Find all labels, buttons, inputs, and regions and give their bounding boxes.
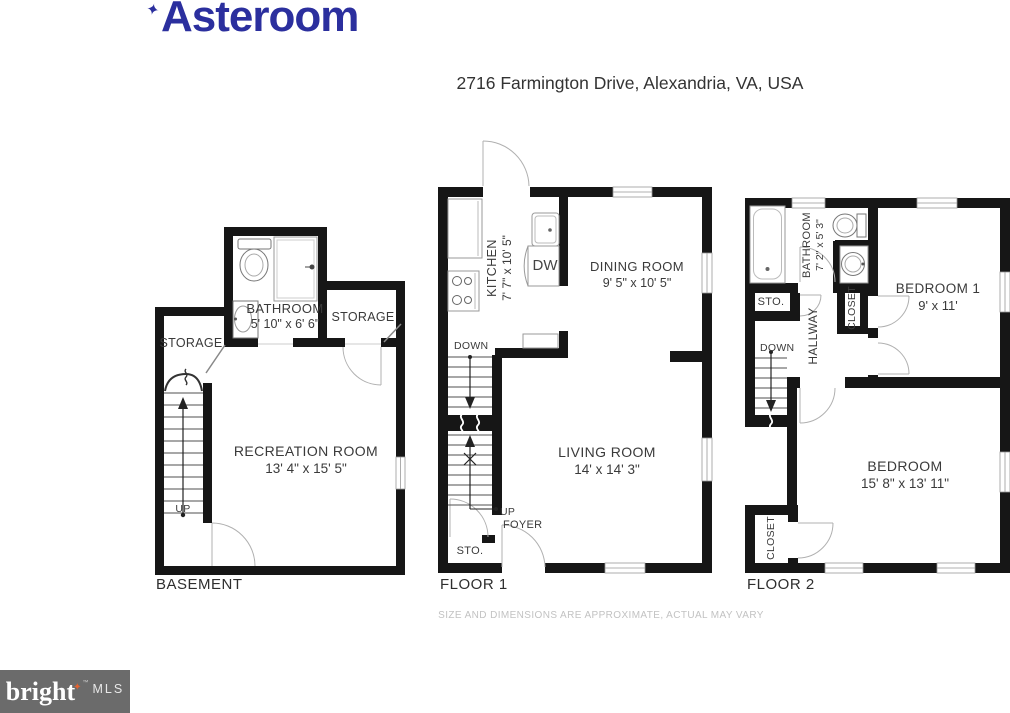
basement-storage-right-label: STORAGE [325, 310, 401, 324]
floor1-storage-label: STO. [452, 545, 488, 558]
floor1-down-label: DOWN [454, 340, 484, 352]
basement-floor-label: BASEMENT [156, 576, 243, 593]
brightmls-suffix: MLS [93, 682, 125, 696]
floor1-kitchen-label: KITCHEN 7' 7" x 10' 5" [485, 235, 515, 301]
basement-stairs-arrow [178, 397, 188, 517]
brightmls-watermark: bright✦™MLS [0, 670, 130, 713]
stove [448, 271, 479, 311]
shower [274, 237, 317, 301]
bathtub [750, 206, 785, 283]
brand-logo: Asteroom [161, 0, 358, 42]
brightmls-star-icon: ✦ [73, 682, 81, 693]
basement-walls [155, 227, 405, 575]
floor2-bedroom-label: BEDROOM 15' 8" x 13' 11" [845, 458, 965, 492]
floor2-plan-drawing [745, 198, 1010, 573]
floor1-foyer-label: FOYER [503, 519, 551, 532]
dishwasher-label: DW [529, 257, 561, 274]
kitchen-counter [448, 199, 482, 258]
floor2-storage-label: STO. [752, 296, 790, 309]
basement-storage-left-label: STORAGE [158, 336, 224, 350]
bathroom-sink [840, 246, 868, 283]
floor2-bedroom1-label: BEDROOM 1 9' x 11' [878, 280, 998, 314]
floor1-floor-label: FLOOR 1 [440, 576, 508, 593]
floor1-living-label: LIVING ROOM 14' x 14' 3" [547, 444, 667, 478]
floor2-bathroom-label: BATHROOM 7' 2" x 5' 3" [801, 212, 827, 278]
floor1-plan-drawing [438, 137, 712, 573]
basement-up-label: UP [168, 503, 198, 515]
floor2-closet-upper-label: CLOSET [846, 286, 858, 330]
property-address: 2716 Farmington Drive, Alexandria, VA, U… [405, 73, 855, 94]
floor1-windows [605, 187, 712, 573]
kitchen-sink [532, 213, 559, 246]
floor2-floor-label: FLOOR 2 [747, 576, 815, 593]
brightmls-tm: ™ [83, 680, 89, 686]
floor1-up-label: UP [500, 506, 524, 518]
floor1-dining-label: DINING ROOM 9' 5" x 10' 5" [577, 259, 697, 291]
basement-arch-opening [165, 369, 202, 391]
toilet [833, 214, 866, 237]
floor2-hallway-label: HALLWAY [807, 307, 821, 364]
floorplan-page: { "logo": { "brand": "Asteroom", "sparkl… [0, 0, 1010, 713]
logo-sparkle-icon: ✦ [144, 0, 161, 21]
toilet [238, 239, 271, 281]
floor2-closet-lower-label: CLOSET [765, 516, 777, 560]
basement-recreation-label: RECREATION ROOM 13' 4" x 15' 5" [214, 443, 398, 477]
chimney-box [523, 334, 558, 348]
basement-plan-drawing [155, 227, 405, 575]
floor2-down-label: DOWN [760, 342, 792, 354]
brightmls-brand: bright [6, 670, 75, 713]
size-disclaimer: SIZE AND DIMENSIONS ARE APPROXIMATE, ACT… [430, 610, 772, 621]
